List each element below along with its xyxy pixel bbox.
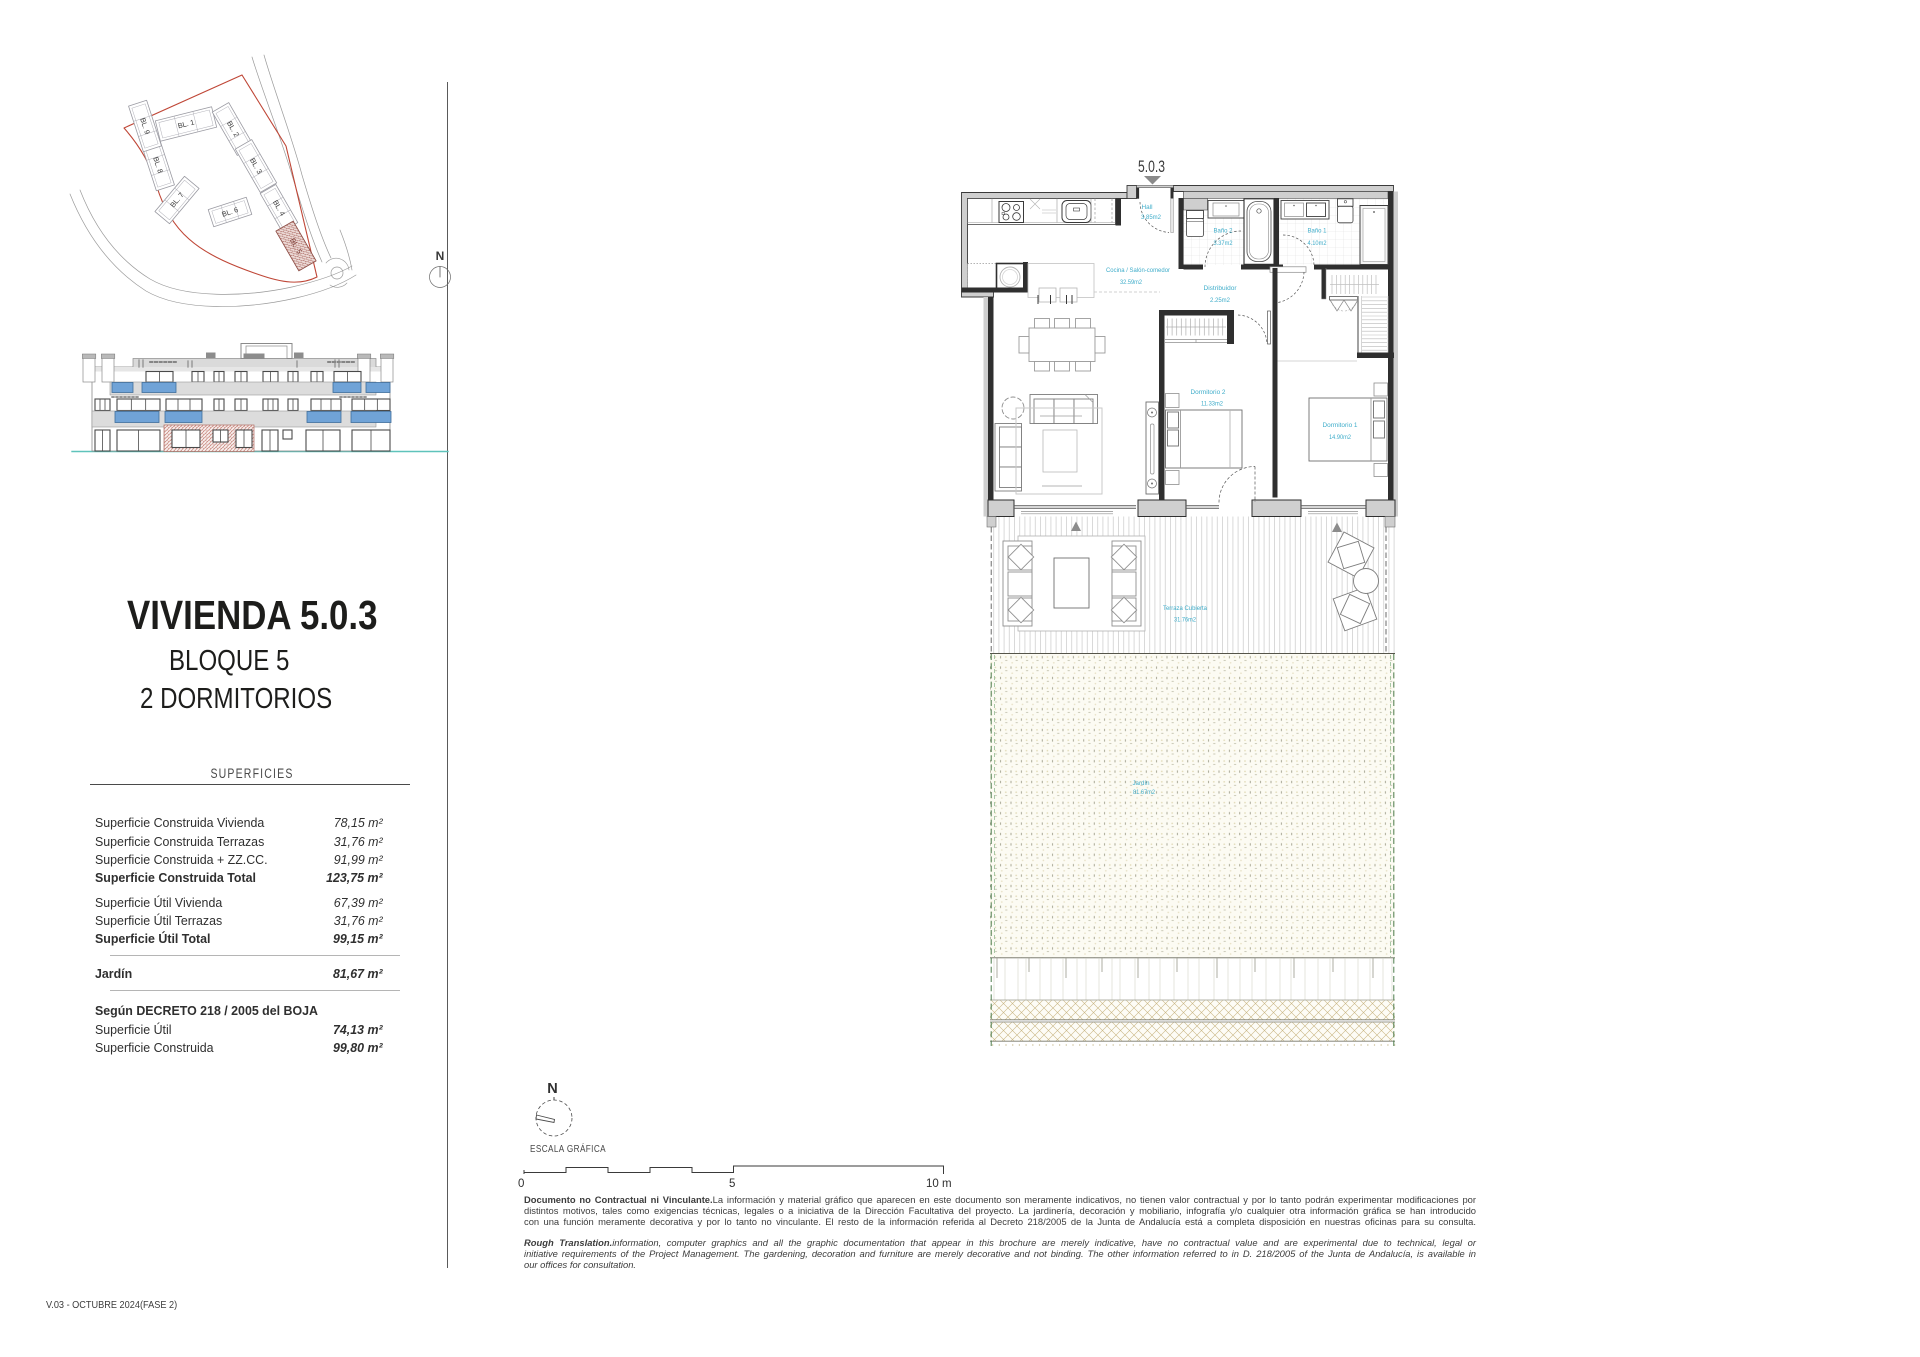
svg-text:32.59m2: 32.59m2 <box>1120 279 1142 286</box>
svg-text:Hall: Hall <box>1142 204 1154 211</box>
svg-text:11.33m2: 11.33m2 <box>1201 401 1223 408</box>
svg-text:14.90m2: 14.90m2 <box>1329 434 1351 441</box>
svg-text:Dormitorio 2: Dormitorio 2 <box>1191 389 1226 396</box>
svg-text:3.37m2: 3.37m2 <box>1214 240 1233 247</box>
svg-text:Jardín: Jardín <box>1133 780 1150 787</box>
svg-text:3.85m2: 3.85m2 <box>1141 214 1161 221</box>
svg-text:Terraza Cubierta: Terraza Cubierta <box>1163 605 1207 612</box>
svg-text:Distribuidor: Distribuidor <box>1204 285 1238 292</box>
svg-text:81.67m2: 81.67m2 <box>1133 789 1155 796</box>
svg-text:Baño 1: Baño 1 <box>1308 228 1327 235</box>
svg-text:Cocina / Salón-comedor: Cocina / Salón-comedor <box>1106 267 1171 274</box>
svg-text:4.10m2: 4.10m2 <box>1308 240 1327 247</box>
svg-text:N: N <box>436 249 445 263</box>
svg-text:Dormitorio 1: Dormitorio 1 <box>1323 422 1358 429</box>
svg-text:Baño 2: Baño 2 <box>1214 228 1233 235</box>
svg-text:2.25m2: 2.25m2 <box>1210 297 1230 304</box>
svg-text:5.0.3: 5.0.3 <box>1138 157 1165 176</box>
svg-text:N: N <box>547 1081 557 1097</box>
svg-text:31.76m2: 31.76m2 <box>1174 617 1196 624</box>
